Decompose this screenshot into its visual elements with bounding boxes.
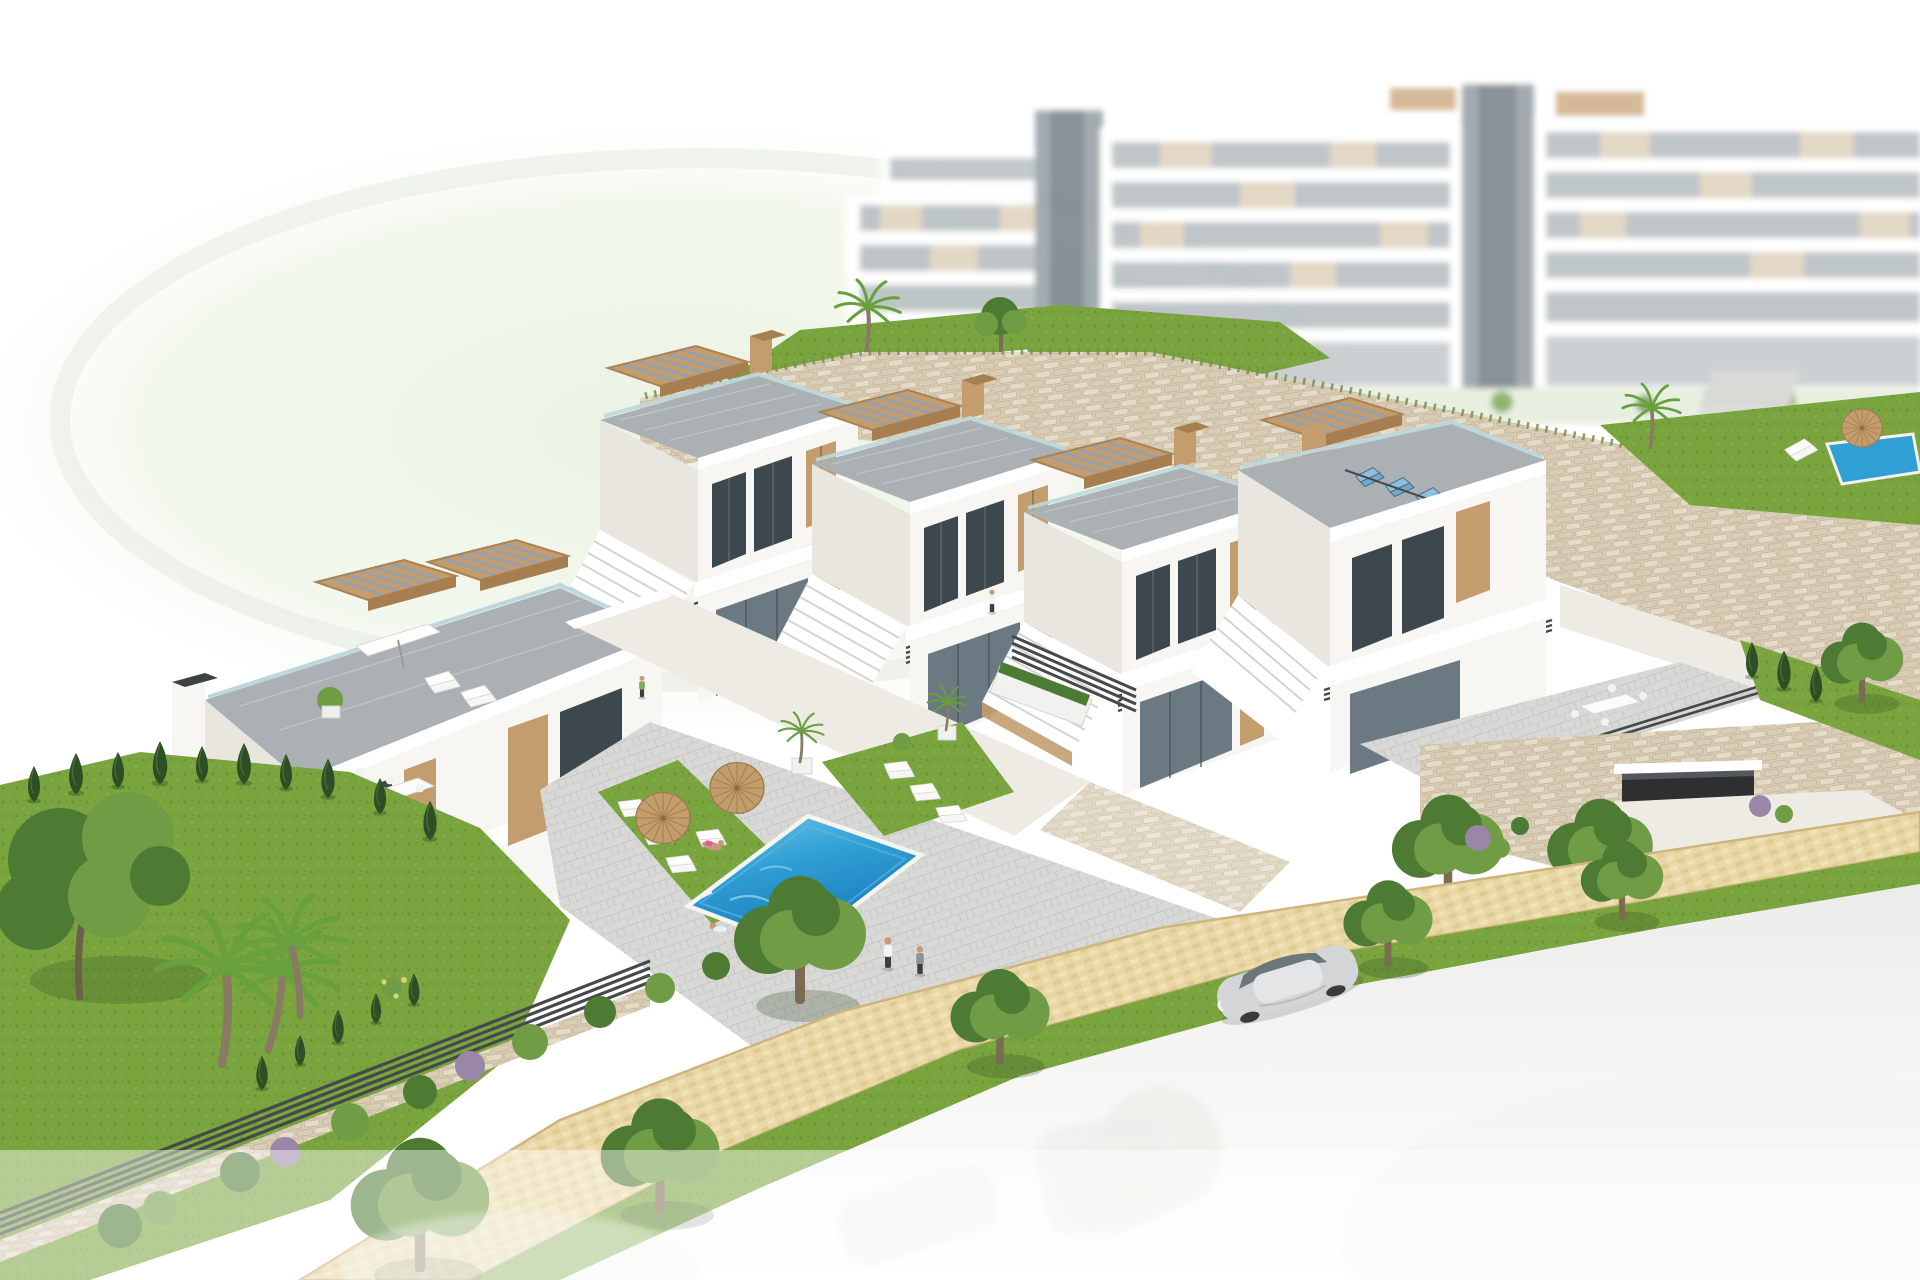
bottom-fade	[0, 1150, 1920, 1280]
parasol-1	[710, 763, 764, 814]
stair-parapet-tan	[508, 714, 548, 846]
render-canvas	[0, 0, 1920, 1280]
parasol-2	[636, 793, 690, 844]
scene-svg	[0, 0, 1920, 1280]
